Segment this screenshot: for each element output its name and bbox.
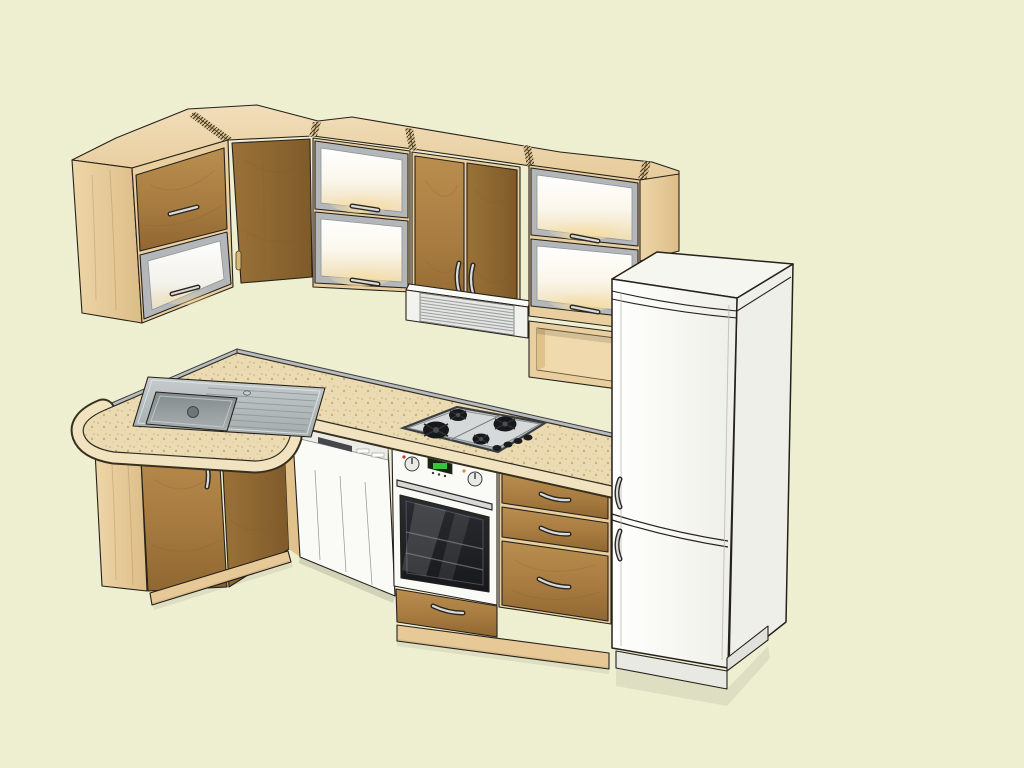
sink: [133, 377, 325, 437]
glass-door-upper: [315, 141, 408, 218]
wall-cabinet-corner: [232, 139, 312, 283]
burner: [473, 434, 490, 445]
refrigerator: [612, 252, 793, 706]
kitchen-scene: [0, 0, 1024, 768]
left-side-panel: [72, 160, 142, 323]
corner-door-handle: [236, 251, 241, 270]
wall-cabinet-left: [72, 140, 233, 323]
dishwasher-label: [372, 453, 384, 457]
kitchen-render: [0, 0, 1024, 768]
base-side-panel: [95, 451, 147, 591]
glass-door-lower: [315, 212, 408, 288]
oven-indicator: [462, 469, 465, 472]
burner: [449, 409, 467, 421]
burner: [494, 417, 517, 432]
fridge-front: [612, 279, 737, 668]
corner-door: [232, 139, 312, 283]
right-side-panel: [640, 174, 679, 261]
fridge-side: [729, 264, 793, 667]
sink-drain: [188, 407, 199, 418]
wall-cabinet-glass-left: [313, 138, 410, 292]
oven-display-digits: [433, 463, 447, 469]
burner: [423, 422, 449, 439]
sink-overflow: [244, 391, 251, 395]
dishwasher-label: [357, 449, 369, 453]
oven-indicator: [402, 455, 405, 458]
